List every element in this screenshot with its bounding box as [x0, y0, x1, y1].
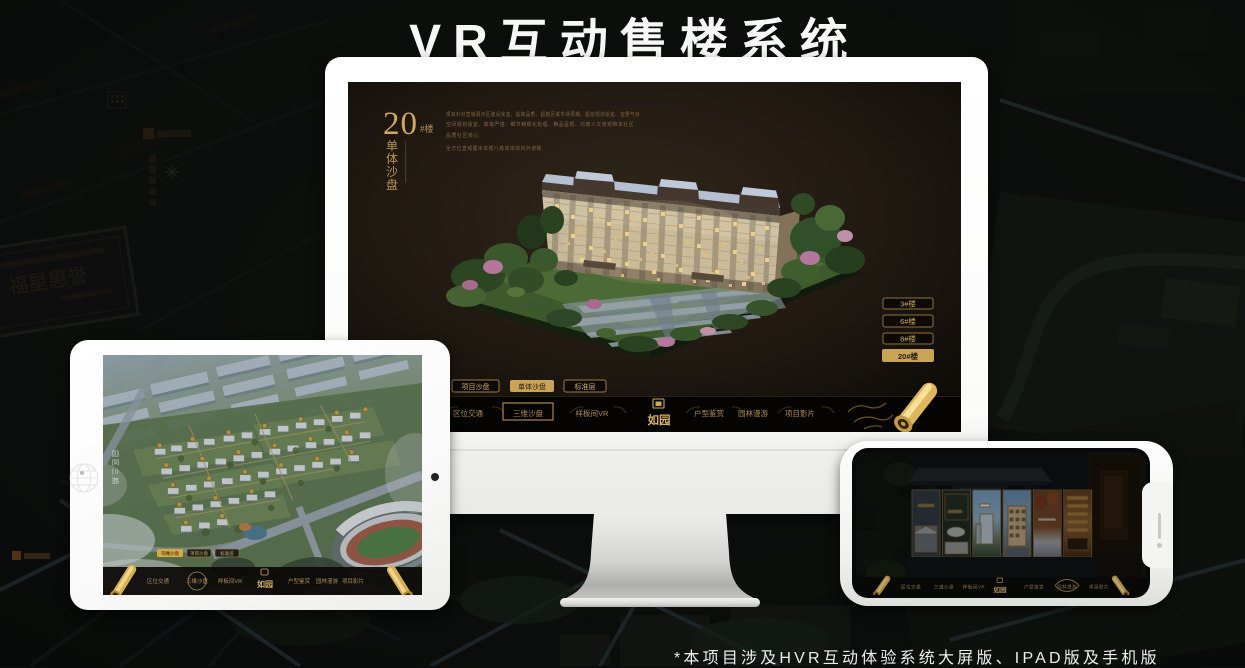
svg-text:沙: 沙	[386, 165, 398, 179]
svg-text:标准层: 标准层	[220, 550, 234, 557]
svg-text:标准层: 标准层	[575, 382, 596, 391]
svg-text:项目针对营销展示区建设完善、提高品质、超越区域市场预期、超前: 项目针对营销展示区建设完善、提高品质、超越区域市场预期、超前规划适宜、宜居气派	[446, 111, 640, 118]
svg-text:园林漫游: 园林漫游	[738, 408, 768, 418]
svg-text:品质社区核心: 品质社区核心	[446, 132, 479, 139]
svg-text:3#楼: 3#楼	[900, 299, 916, 309]
svg-text:全方位直观展示本楼八栋单体的内外景致: 全方位直观展示本楼八栋单体的内外景致	[446, 145, 542, 152]
svg-text:#楼: #楼	[420, 123, 434, 134]
svg-text:空间规划适宜、高端严谨、细节精细化处理、精品呈现、均衡人文景: 空间规划适宜、高端严谨、细节精细化处理、精品呈现、均衡人文景观带本社区	[446, 121, 634, 128]
svg-text:三维沙盘: 三维沙盘	[513, 408, 543, 418]
svg-text:鸟瞰沙盘: 鸟瞰沙盘	[161, 550, 179, 557]
svg-text:项目沙盘: 项目沙盘	[190, 550, 208, 557]
svg-text:园区三期: 园区三期	[111, 450, 119, 486]
svg-text:三维沙盘: 三维沙盘	[186, 577, 209, 585]
svg-text:样板间VR: 样板间VR	[218, 577, 242, 585]
svg-text:区位交通: 区位交通	[147, 577, 170, 585]
svg-text:园林漫游: 园林漫游	[316, 577, 339, 585]
svg-text:单体沙盘: 单体沙盘	[518, 382, 546, 391]
svg-text:如园: 如园	[257, 579, 273, 589]
svg-text:8#楼: 8#楼	[900, 334, 916, 344]
svg-text:单: 单	[386, 139, 398, 153]
svg-text:项目沙盘: 项目沙盘	[462, 382, 490, 391]
svg-text:体: 体	[386, 152, 398, 166]
svg-text:户型鉴赏: 户型鉴赏	[694, 408, 724, 418]
svg-text:项目影片: 项目影片	[785, 408, 815, 418]
svg-text:如园: 如园	[648, 413, 671, 427]
svg-text:20#楼: 20#楼	[898, 351, 919, 361]
svg-text:样板间VR: 样板间VR	[576, 408, 610, 418]
svg-text:6#楼: 6#楼	[900, 316, 916, 326]
svg-text:项目影片: 项目影片	[342, 577, 364, 585]
svg-text:20: 20	[383, 106, 418, 142]
svg-text:盘: 盘	[386, 177, 398, 192]
svg-text:区位交通: 区位交通	[453, 408, 483, 418]
svg-text:户型鉴赏: 户型鉴赏	[288, 577, 311, 585]
